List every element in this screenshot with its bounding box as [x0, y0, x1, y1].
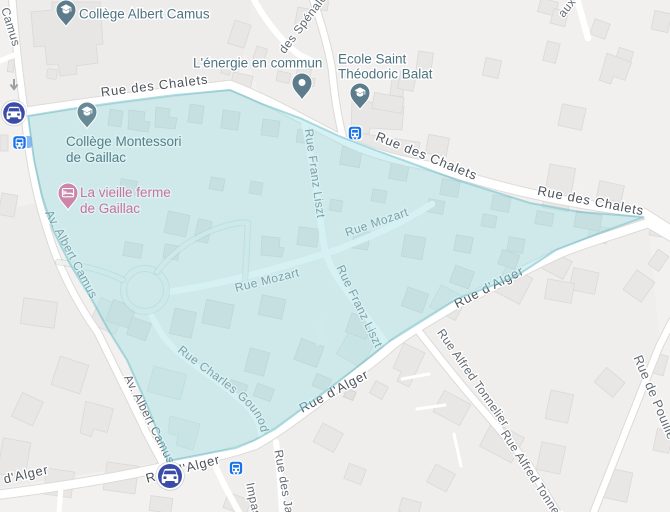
- svg-text:L'énergie en commun: L'énergie en commun: [193, 56, 322, 71]
- svg-text:de Gaillac: de Gaillac: [80, 201, 140, 216]
- svg-text:de Gaillac: de Gaillac: [66, 150, 126, 165]
- svg-text:Ecole Saint: Ecole Saint: [338, 52, 407, 67]
- svg-text:Théodoric Balat: Théodoric Balat: [338, 67, 433, 82]
- svg-text:Collège Montessori: Collège Montessori: [66, 134, 182, 149]
- svg-text:Collège Albert Camus: Collège Albert Camus: [79, 7, 210, 22]
- svg-text:La vieille ferme: La vieille ferme: [80, 185, 171, 200]
